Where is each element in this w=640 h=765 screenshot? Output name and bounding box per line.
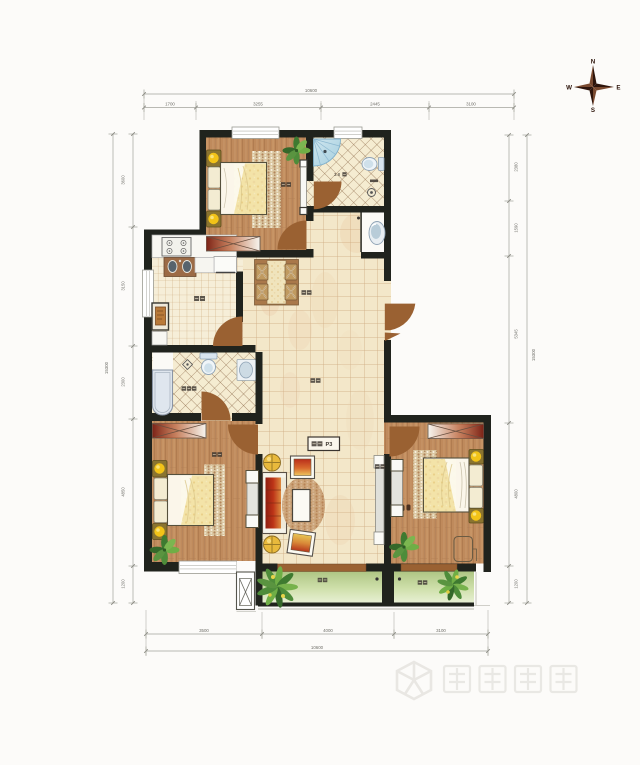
- svg-text:1700: 1700: [165, 101, 175, 106]
- svg-text:3.8: 3.8: [334, 172, 341, 177]
- svg-text:10600: 10600: [305, 88, 318, 93]
- svg-text:1200: 1200: [121, 579, 126, 589]
- svg-text:1590: 1590: [514, 223, 519, 233]
- svg-text:15300: 15300: [104, 361, 109, 374]
- svg-text:4850: 4850: [121, 487, 126, 497]
- svg-text:3100: 3100: [466, 101, 476, 106]
- svg-text:4000: 4000: [323, 628, 333, 633]
- svg-text:W: W: [566, 84, 572, 91]
- svg-text:2445: 2445: [370, 101, 380, 106]
- svg-text:3255: 3255: [253, 101, 263, 106]
- svg-text:1200: 1200: [514, 579, 519, 589]
- svg-text:5345: 5345: [514, 329, 519, 339]
- svg-text:S: S: [591, 107, 595, 114]
- svg-text:N: N: [591, 59, 596, 66]
- svg-text:10600: 10600: [311, 645, 324, 650]
- svg-text:2380: 2380: [514, 162, 519, 172]
- svg-text:4800: 4800: [514, 489, 519, 499]
- svg-text:3100: 3100: [436, 628, 446, 633]
- svg-text:E: E: [616, 84, 620, 91]
- svg-text:3150: 3150: [121, 281, 126, 291]
- svg-text:3500: 3500: [199, 628, 209, 633]
- svg-text:15300: 15300: [531, 348, 536, 361]
- svg-text:P3: P3: [326, 442, 333, 448]
- svg-text:3600: 3600: [121, 175, 126, 185]
- svg-text:2300: 2300: [121, 377, 126, 387]
